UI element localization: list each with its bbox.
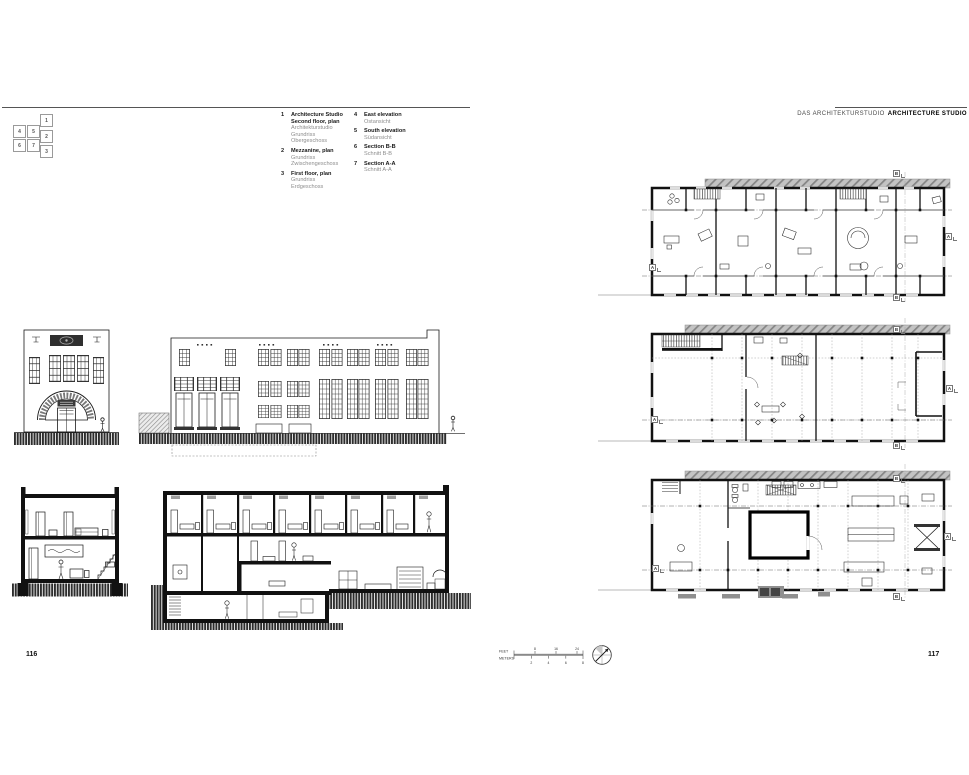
marker-letter: A — [945, 233, 952, 240]
legend-subtitle: Grundriss Zwischengeschoss — [291, 155, 338, 168]
legend-number: 4 — [354, 112, 364, 125]
section-aa-drawing — [151, 481, 471, 633]
south-elevation-drawing — [139, 321, 465, 457]
section-marker-a: A — [944, 533, 956, 541]
legend-number: 7 — [354, 161, 364, 174]
marker-letter: B — [893, 170, 900, 177]
second-floor-plan-drawing — [650, 176, 950, 304]
marker-letter: A — [946, 385, 953, 392]
legend-item: 6 Section B-B Schnitt B-B — [354, 144, 424, 157]
key-box-5: 5 — [27, 125, 40, 138]
header-english: ARCHITECTURE STUDIO — [888, 111, 967, 117]
marker-tick — [954, 389, 958, 393]
mezzanine-plan-drawing — [650, 322, 950, 450]
section-marker-a: A — [945, 233, 957, 241]
key-box-7: 7 — [27, 139, 40, 152]
section-marker-b: B — [893, 294, 905, 302]
key-box-3: 3 — [40, 145, 53, 158]
marker-letter: A — [649, 264, 656, 271]
legend-item: 2 Mezzanine, plan Grundriss Zwischengesc… — [281, 148, 353, 168]
marker-tick — [901, 446, 905, 450]
legend-subtitle: Architekturstudio Grundriss Obergeschoss — [291, 125, 333, 144]
legend-number: 1 — [281, 112, 291, 145]
marker-tick — [901, 597, 905, 601]
marker-letter: B — [893, 475, 900, 482]
legend-title: South elevation — [364, 128, 406, 134]
scale-meters-tick: 8 — [582, 661, 584, 665]
marker-tick — [901, 330, 905, 334]
legend-title: First floor, plan — [291, 171, 331, 177]
scale-bar: FEET METERS 8 16 24 2 4 6 8 — [498, 643, 590, 667]
section-marker-b: B — [893, 475, 905, 483]
legend-number: 5 — [354, 128, 364, 141]
marker-letter: B — [893, 442, 900, 449]
key-box-label: 4 — [18, 129, 21, 135]
scale-feet-label: FEET — [499, 650, 509, 654]
scale-feet-tick: 16 — [554, 647, 558, 651]
legend-item: 4 East elevation Ostansicht — [354, 112, 424, 125]
right-page-top-rule — [835, 107, 967, 108]
marker-letter: A — [651, 416, 658, 423]
key-box-4: 4 — [13, 125, 26, 138]
legend-column-2: 4 East elevation Ostansicht 5 South elev… — [354, 112, 424, 177]
left-page-top-rule — [2, 107, 470, 108]
section-marker-b: B — [893, 593, 905, 601]
key-box-label: 6 — [18, 143, 21, 149]
legend-number: 6 — [354, 144, 364, 157]
legend-column-1: 1 Architecture Studio Second floor, plan… — [281, 112, 353, 194]
legend-subtitle: Ostansicht — [364, 119, 390, 125]
east-elevation-drawing — [14, 324, 119, 450]
key-box-6: 6 — [13, 139, 26, 152]
marker-letter: A — [944, 533, 951, 540]
marker-tick — [952, 537, 956, 541]
legend-title: East elevation — [364, 112, 402, 118]
legend-title: Architecture Studio Second floor, plan — [291, 112, 343, 125]
scale-meters-tick: 4 — [548, 661, 550, 665]
section-marker-b: B — [893, 170, 905, 178]
marker-tick — [953, 237, 957, 241]
scale-meters-label: METERS — [499, 657, 515, 661]
marker-tick — [901, 479, 905, 483]
page-number-right: 117 — [928, 651, 939, 658]
marker-tick — [660, 569, 664, 573]
section-marker-a: A — [946, 385, 958, 393]
marker-letter: B — [893, 326, 900, 333]
scale-meters-tick: 2 — [530, 661, 532, 665]
section-marker-b: B — [893, 326, 905, 334]
legend-subtitle: Südansicht — [364, 135, 392, 141]
key-box-label: 2 — [45, 134, 48, 140]
key-box-label: 1 — [45, 118, 48, 124]
page-number-left: 116 — [26, 651, 37, 658]
legend-subtitle: Schnitt A-A — [364, 167, 392, 173]
section-bb-drawing — [12, 486, 128, 602]
legend-item: 5 South elevation Südansicht — [354, 128, 424, 141]
marker-tick — [657, 268, 661, 272]
legend-title: Section A-A — [364, 161, 396, 167]
legend-title: Section B-B — [364, 144, 396, 150]
key-box-label: 5 — [32, 129, 35, 135]
section-marker-a: A — [652, 565, 664, 573]
key-box-2: 2 — [40, 130, 53, 143]
marker-letter: A — [652, 565, 659, 572]
section-marker-a: A — [649, 264, 661, 272]
legend-subtitle: Grundriss Erdgeschoss — [291, 177, 323, 190]
section-marker-b: B — [893, 442, 905, 450]
book-spread: 1 2 3 4 5 6 7 1 Architecture Studio Seco… — [0, 0, 969, 775]
marker-tick — [901, 298, 905, 302]
marker-letter: B — [893, 593, 900, 600]
section-marker-a: A — [651, 416, 663, 424]
scale-feet-tick: 8 — [534, 647, 536, 651]
marker-tick — [901, 174, 905, 178]
key-box-1: 1 — [40, 114, 53, 127]
scale-meters-tick: 6 — [565, 661, 567, 665]
legend-subtitle: Schnitt B-B — [364, 151, 392, 157]
header-german: DAS ARCHITEKTURSTUDIO — [797, 111, 884, 117]
marker-letter: B — [893, 294, 900, 301]
key-box-label: 7 — [32, 143, 35, 149]
legend-item: 3 First floor, plan Grundriss Erdgeschos… — [281, 171, 353, 191]
legend-number: 2 — [281, 148, 291, 168]
key-box-label: 3 — [45, 149, 48, 155]
right-page-header: DAS ARCHITEKTURSTUDIOARCHITECTURE STUDIO — [797, 111, 967, 117]
north-arrow-icon — [589, 640, 615, 670]
legend-item: 7 Section A-A Schnitt A-A — [354, 161, 424, 174]
legend-number: 3 — [281, 171, 291, 191]
scale-feet-tick: 24 — [575, 647, 579, 651]
legend-title: Mezzanine, plan — [291, 148, 334, 154]
legend-item: 1 Architecture Studio Second floor, plan… — [281, 112, 353, 145]
marker-tick — [659, 420, 663, 424]
first-floor-plan-drawing — [650, 468, 950, 608]
